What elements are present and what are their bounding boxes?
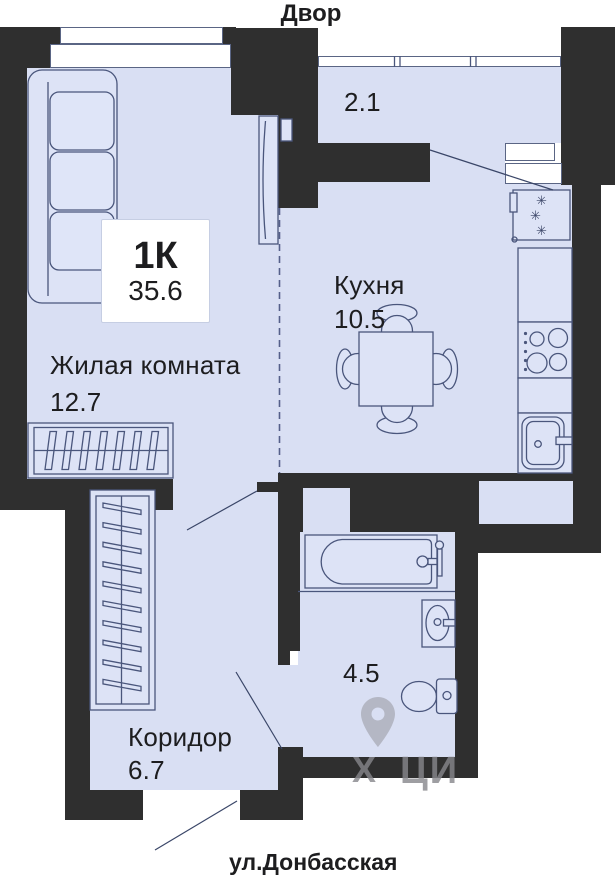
kitchen-window-lower <box>505 163 562 184</box>
unit-type: 1К <box>133 237 177 275</box>
kitchen-area: 10.5 <box>334 302 405 336</box>
unit-total-area: 35.6 <box>128 276 183 306</box>
wall-corridor-bottom-left <box>65 790 143 820</box>
living-room-label: Жилая комната 12.7 <box>50 347 240 421</box>
snowflake-icon: ✳ <box>536 193 547 208</box>
vent-shaft-left <box>303 488 350 532</box>
floor-bathroom <box>298 530 455 757</box>
wall-kitchen-right <box>572 182 601 490</box>
floor-plan: Х ЦИ ✳ ✳ ✳ Двор 2.1 Кухня 10.5 Жилая ком… <box>0 0 615 880</box>
corridor-label: Коридор 6.7 <box>128 721 232 787</box>
unit-info-badge: 1К 35.6 <box>101 219 210 323</box>
snowflake-icon: ✳ <box>530 208 541 223</box>
wall-living-bottom <box>0 479 173 510</box>
living-window-sill <box>50 44 231 68</box>
floor-balcony-doorway <box>430 143 505 184</box>
balcony-window <box>318 56 561 67</box>
kitchen-name: Кухня <box>334 268 405 302</box>
bathroom-area-label: 4.5 <box>343 656 380 690</box>
snowflake-icon: ✳ <box>536 223 547 238</box>
wall-corridor-left <box>65 510 90 820</box>
corridor-area: 6.7 <box>128 754 232 787</box>
floor-living-room-right <box>231 115 278 479</box>
floor-kitchen <box>278 208 572 473</box>
wall-bathroom-bottom <box>288 757 478 778</box>
wall-corridor-bottom-right <box>240 790 303 820</box>
wall-room-divider <box>278 115 318 208</box>
kitchen-window-upper <box>505 143 555 161</box>
kitchen-label: Кухня 10.5 <box>334 268 405 336</box>
corridor-name: Коридор <box>128 721 232 754</box>
fridge-snowflake-icons: ✳ ✳ ✳ <box>513 190 570 240</box>
wall-left <box>0 27 27 510</box>
wall-bathroom-left-stub <box>278 651 290 665</box>
wall-top-corner-block <box>231 28 318 115</box>
wall-bathroom-left <box>278 473 300 651</box>
wall-balcony-bottom <box>318 143 430 182</box>
wall-right-top-block <box>561 27 615 185</box>
street-label: ул.Донбасская <box>229 849 397 876</box>
balcony-area-label: 2.1 <box>344 85 381 119</box>
vent-shaft-right <box>479 481 573 524</box>
living-room-area: 12.7 <box>50 384 240 421</box>
entrance-door-swing <box>155 801 237 850</box>
living-room-name: Жилая комната <box>50 347 240 384</box>
wall-bathroom-right-upper <box>455 524 601 553</box>
floor-bathroom-doorway <box>278 665 300 747</box>
wall-bathroom-right <box>455 553 478 778</box>
living-window-sash <box>60 27 223 44</box>
courtyard-label: Двор <box>253 0 369 28</box>
wall-door-jamb-stub <box>257 482 278 492</box>
